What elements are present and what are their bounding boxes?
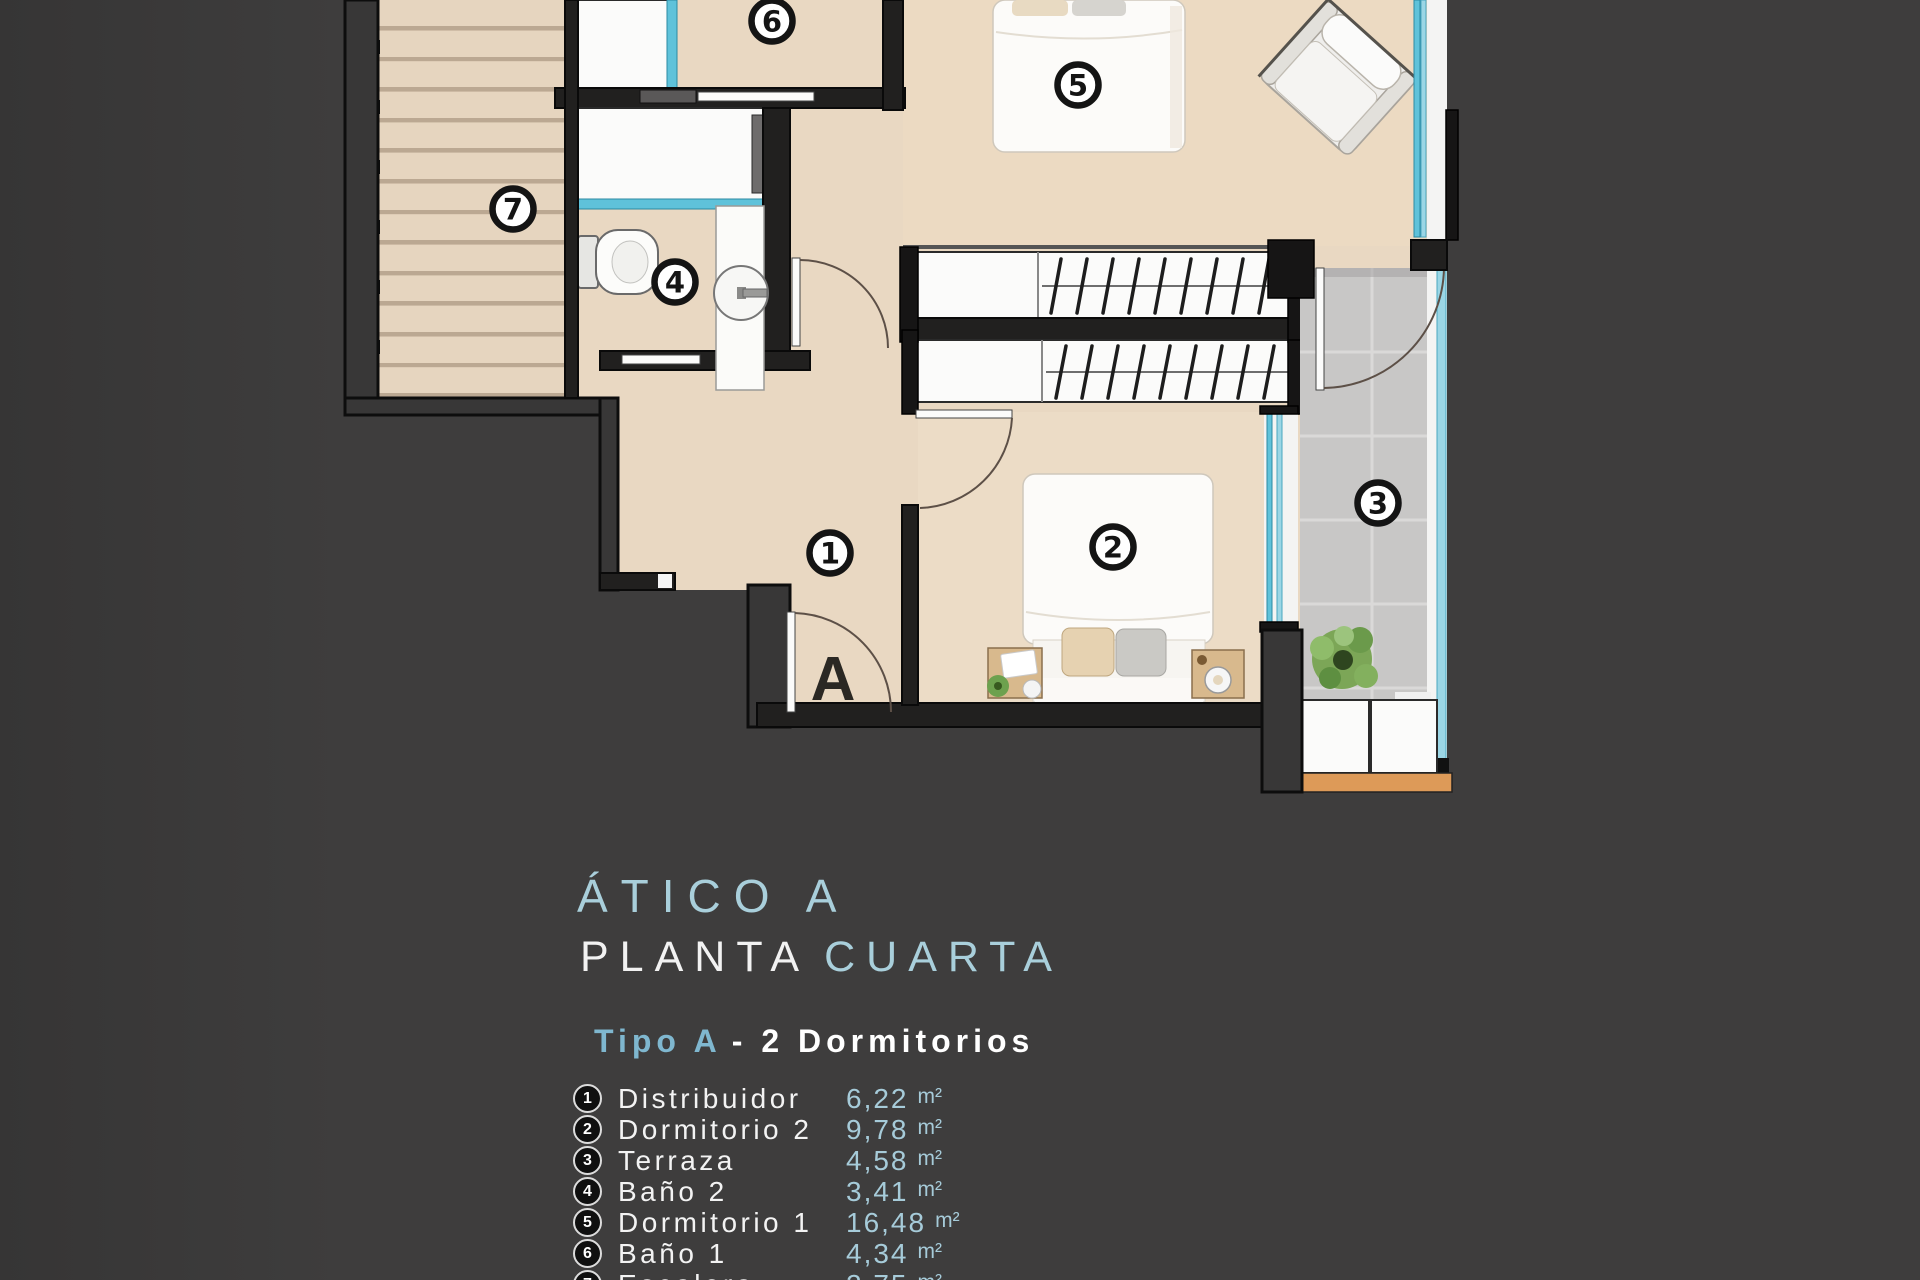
legend-area-unit: m² bbox=[918, 1178, 943, 1202]
room-label: 1 bbox=[810, 533, 851, 574]
wardrobes bbox=[900, 245, 1305, 414]
terrace-storage-box bbox=[1302, 700, 1369, 773]
room-label: 5 bbox=[1058, 65, 1099, 106]
legend-room-name: Baño 2 bbox=[618, 1176, 846, 1208]
legend-bullet: 2 bbox=[573, 1115, 602, 1144]
legend-bullet: 4 bbox=[573, 1177, 602, 1206]
legend-area-unit: m² bbox=[935, 1209, 960, 1233]
legend-row: 6 Baño 1 4,34 m² bbox=[573, 1241, 960, 1266]
terrace-storage-box bbox=[1371, 700, 1437, 773]
shower-glass-1 bbox=[667, 0, 677, 90]
legend-bullet: 6 bbox=[573, 1239, 602, 1268]
legend-room-name: Terraza bbox=[618, 1145, 846, 1177]
legend-room-area: 3,41 bbox=[846, 1176, 909, 1208]
plan-title: ÁTICO A bbox=[577, 869, 849, 923]
legend-area-unit: m² bbox=[918, 1240, 943, 1264]
room-label: 2 bbox=[1093, 527, 1134, 568]
legend-row: 1 Distribuidor 6,22 m² bbox=[573, 1086, 960, 1111]
room-label: 7 bbox=[493, 189, 534, 230]
legend-room-area: 16,48 bbox=[846, 1207, 926, 1239]
plan-subtitle-blue: CUARTA bbox=[824, 933, 1063, 981]
legend-row: 7 Escalera 2,75 m² bbox=[573, 1272, 960, 1280]
terrace-deck-strip bbox=[1302, 773, 1452, 792]
staircase bbox=[372, 0, 565, 398]
plan-subtitle: PLANTACUARTA bbox=[580, 933, 1063, 982]
page: 1234567A ÁTICO A PLANTACUARTA Tipo A- 2 … bbox=[0, 0, 1920, 1280]
type-heading: Tipo A- 2 Dormitorios bbox=[594, 1023, 1034, 1060]
terrace-glass-railing bbox=[1437, 268, 1446, 770]
svg-text:4: 4 bbox=[665, 266, 685, 300]
entry-door-leaf bbox=[787, 612, 795, 712]
bedroom-2-door-leaf bbox=[916, 410, 1012, 418]
room-label: 6 bbox=[752, 1, 793, 42]
legend-room-area: 9,78 bbox=[846, 1114, 909, 1146]
legend-room-area: 4,58 bbox=[846, 1145, 909, 1177]
legend-row: 4 Baño 2 3,41 m² bbox=[573, 1179, 960, 1204]
plan-subtitle-white: PLANTA bbox=[580, 933, 810, 981]
legend-row: 3 Terraza 4,58 m² bbox=[573, 1148, 960, 1173]
entry-letter: A bbox=[811, 645, 856, 714]
legend-room-name: Dormitorio 2 bbox=[618, 1114, 846, 1146]
svg-text:1: 1 bbox=[820, 537, 840, 571]
room-label: 3 bbox=[1358, 483, 1399, 524]
type-heading-blue: Tipo A bbox=[594, 1023, 722, 1059]
legend-room-name: Dormitorio 1 bbox=[618, 1207, 846, 1239]
sink-icon bbox=[714, 206, 768, 390]
legend-room-area: 6,22 bbox=[846, 1083, 909, 1115]
legend-area-unit: m² bbox=[918, 1116, 943, 1140]
legend-area-unit: m² bbox=[918, 1271, 943, 1280]
legend-room-name: Escalera bbox=[618, 1269, 846, 1280]
legend-room-name: Baño 1 bbox=[618, 1238, 846, 1270]
bed-2-icon bbox=[1023, 474, 1213, 702]
legend-bullet: 3 bbox=[573, 1146, 602, 1175]
room-label: 4 bbox=[655, 262, 696, 303]
shower-1 bbox=[578, 0, 670, 90]
svg-text:2: 2 bbox=[1103, 531, 1123, 565]
nightstand-left-icon bbox=[987, 648, 1042, 698]
floor-plan: 1234567A bbox=[0, 0, 1920, 1280]
legend-bullet: 5 bbox=[573, 1208, 602, 1237]
svg-text:7: 7 bbox=[503, 193, 523, 227]
room-legend: 1 Distribuidor 6,22 m² 2 Dormitorio 2 9,… bbox=[573, 1086, 960, 1280]
legend-row: 2 Dormitorio 2 9,78 m² bbox=[573, 1117, 960, 1142]
svg-text:6: 6 bbox=[762, 5, 782, 39]
corridor-door-leaf bbox=[792, 258, 800, 346]
nightstand-right-icon bbox=[1192, 650, 1244, 698]
legend-bullet: 1 bbox=[573, 1084, 602, 1113]
legend-row: 5 Dormitorio 1 16,48 m² bbox=[573, 1210, 960, 1235]
shower-2 bbox=[578, 108, 765, 201]
svg-text:5: 5 bbox=[1068, 69, 1088, 103]
legend-bullet: 7 bbox=[573, 1270, 602, 1280]
legend-room-area: 2,75 bbox=[846, 1269, 909, 1280]
terrace-door-leaf bbox=[1316, 268, 1324, 390]
legend-area-unit: m² bbox=[918, 1147, 943, 1171]
toilet-icon bbox=[578, 230, 658, 294]
legend-room-area: 4,34 bbox=[846, 1238, 909, 1270]
legend-area-unit: m² bbox=[918, 1085, 943, 1109]
svg-text:3: 3 bbox=[1368, 487, 1388, 521]
sliding-door-1 bbox=[698, 92, 814, 101]
sliding-door-2 bbox=[622, 355, 700, 364]
type-heading-white: - 2 Dormitorios bbox=[732, 1023, 1035, 1059]
legend-room-name: Distribuidor bbox=[618, 1083, 846, 1115]
